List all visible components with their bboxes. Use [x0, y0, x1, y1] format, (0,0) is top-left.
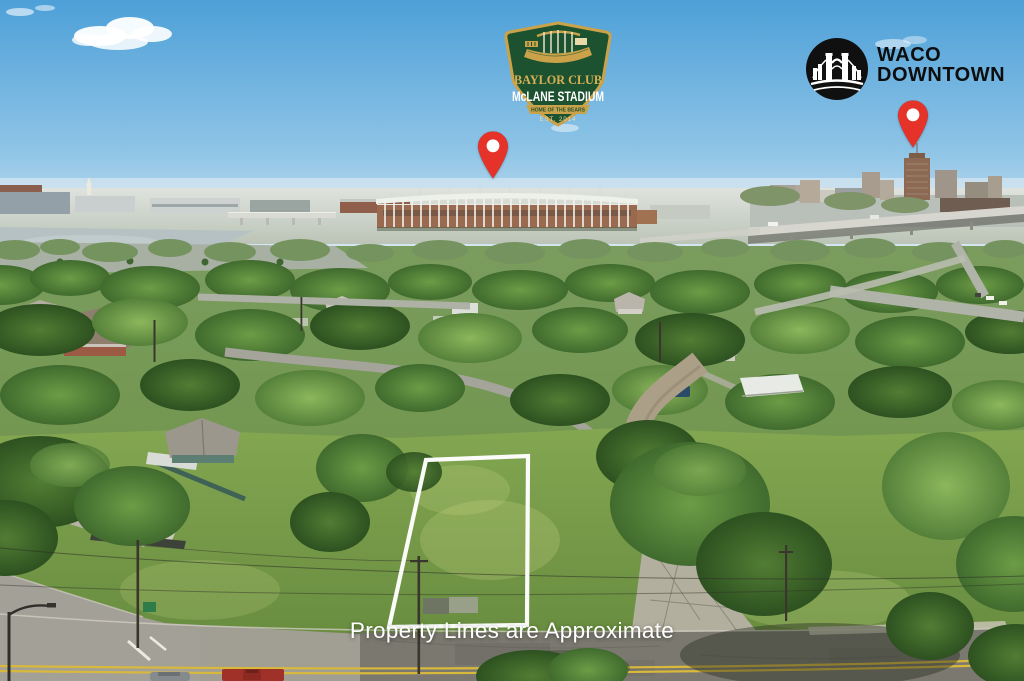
gray-car [150, 672, 190, 681]
badge-ribbon-text: HOME OF THE BEARS [531, 108, 585, 114]
red-truck [222, 669, 284, 681]
waco-line1: WACO [877, 45, 1005, 65]
concrete-pad [423, 597, 478, 614]
waco-downtown-badge: WACO DOWNTOWN [804, 36, 1005, 102]
waco-line2: DOWNTOWN [877, 65, 1005, 85]
aerial-property-photo: BAYLOR CLUB McLANE STADIUM HOME OF THE B… [0, 0, 1024, 681]
badge-est-text: EST. 2014 [540, 117, 577, 123]
waco-bridge-circle-icon [804, 36, 870, 102]
property-caption: Property Lines are Approximate [0, 618, 1024, 644]
location-pin-mclane-stadium-icon [477, 130, 509, 180]
waco-wordmark: WACO DOWNTOWN [877, 36, 1005, 86]
badge-club-name: BAYLOR CLUB [514, 72, 602, 87]
location-pin-downtown-icon [897, 99, 929, 149]
street-sign [143, 602, 156, 612]
baylor-club-mclane-stadium-badge: BAYLOR CLUB McLANE STADIUM HOME OF THE B… [497, 21, 619, 127]
badge-stadium-name: McLANE STADIUM [512, 89, 604, 104]
